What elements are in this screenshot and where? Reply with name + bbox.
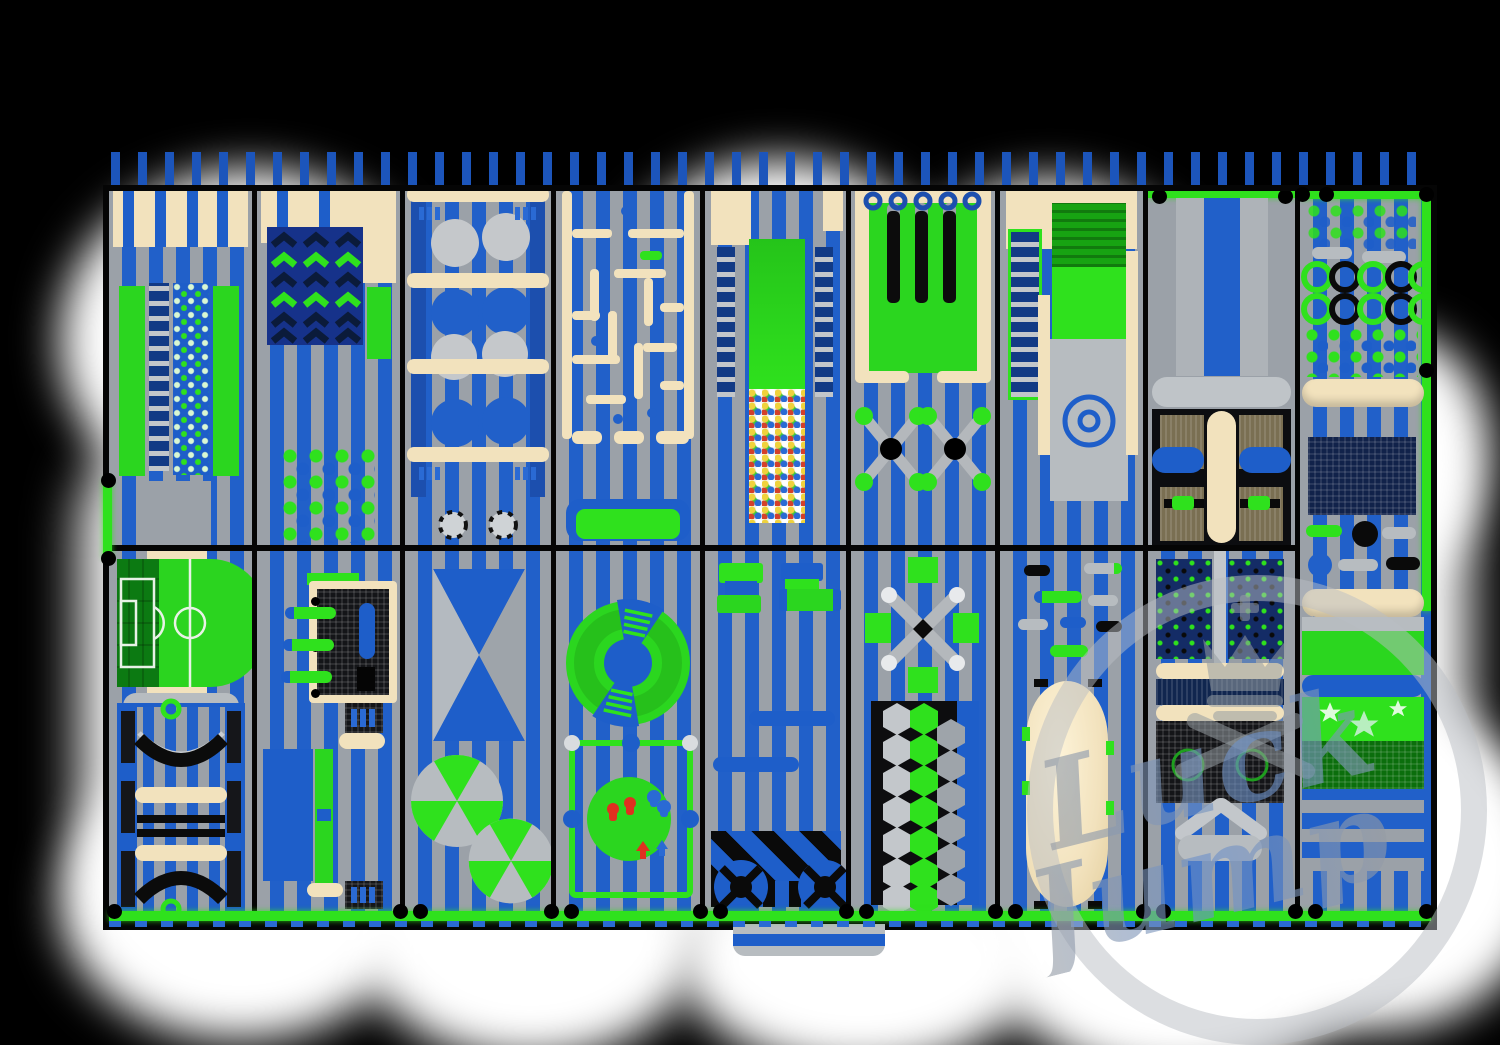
punch-bars — [887, 203, 956, 303]
playground-render: Lucky Jump — [0, 0, 1500, 1045]
entrance-step-stripe — [733, 934, 885, 946]
stepper — [1096, 621, 1122, 632]
roller-section — [1052, 203, 1126, 267]
bolt — [1288, 904, 1303, 919]
top-platform — [823, 191, 843, 231]
green-trim — [1148, 191, 1295, 198]
beige-divider — [135, 845, 227, 861]
beam-cap — [307, 883, 343, 897]
green-peg — [281, 671, 332, 683]
zone-rings-obstacle-lane — [1300, 191, 1431, 918]
seat — [785, 579, 819, 589]
green-peg — [285, 607, 336, 619]
blue-mat — [263, 749, 313, 881]
green-trim-bottom — [109, 911, 1431, 921]
roller-log — [1302, 589, 1424, 617]
landing-lane — [145, 481, 211, 545]
bag-strap — [1106, 741, 1114, 755]
corner-bolt — [1152, 191, 1167, 204]
trampoline-lanes — [109, 691, 252, 918]
stepper — [1034, 591, 1082, 603]
pinwheel-mat — [406, 755, 551, 903]
blue-beam — [749, 711, 835, 726]
zone-foam-maze — [556, 191, 700, 545]
zone-chevron-wall — [257, 191, 400, 545]
stepper — [1018, 619, 1048, 630]
landing-pad — [576, 509, 680, 539]
hold-dot-panel — [173, 283, 209, 475]
giant-balls — [431, 213, 530, 447]
zone-climb-panels-trampoline — [1148, 551, 1295, 918]
screen-bolt — [311, 597, 320, 606]
bag-strap — [1106, 801, 1114, 815]
maze — [556, 191, 700, 545]
gray-platform — [1178, 835, 1262, 861]
screen-black-bar — [357, 667, 375, 691]
roller-bolster — [1156, 663, 1284, 679]
entrance-step — [733, 924, 885, 956]
beam-cap — [339, 733, 385, 749]
bag-strap — [1022, 727, 1030, 741]
stepping-dot-grid — [283, 449, 375, 543]
green-climb-panel — [213, 286, 239, 476]
striped-runout — [1302, 789, 1424, 871]
zone-spin-wheel — [556, 551, 700, 918]
green-step — [640, 251, 662, 260]
green-peg — [283, 639, 334, 651]
bag-strap — [1022, 781, 1030, 795]
zone-ball-pit-slide — [705, 191, 846, 545]
zone-roller-slide — [1000, 191, 1143, 545]
spinner-discs — [440, 512, 516, 538]
bolt — [393, 904, 408, 919]
blue-beam — [713, 757, 799, 772]
dot-climb-panel — [1228, 559, 1284, 659]
zone-climbing-wall — [109, 191, 252, 545]
platform-step — [361, 243, 396, 283]
slide-body — [1052, 267, 1126, 339]
pod-dots — [1308, 205, 1416, 249]
target-circles — [1050, 339, 1128, 501]
beige-divider — [135, 787, 227, 803]
bolt — [544, 904, 559, 919]
green-climb-panel — [119, 286, 145, 476]
wall-post — [217, 191, 228, 247]
black-stepper — [1386, 557, 1420, 570]
side-rail — [1038, 295, 1050, 455]
giant-balls-frame — [405, 191, 551, 545]
fenced-platform — [563, 734, 699, 895]
zone-giant-balls — [405, 191, 551, 545]
seat-front — [717, 595, 761, 613]
bolt — [1295, 187, 1310, 202]
bolt — [988, 904, 1003, 919]
green-trim-left — [103, 480, 112, 558]
stepper — [1060, 617, 1086, 628]
roller-bolster — [1156, 705, 1284, 721]
green-pad — [1248, 496, 1270, 510]
pod-dots-dense — [1306, 329, 1418, 377]
hex-bridge — [871, 701, 979, 915]
slide-lane — [749, 239, 805, 389]
bolt — [859, 904, 874, 919]
roller-log — [1302, 379, 1424, 407]
bolt — [101, 551, 116, 566]
seat — [725, 581, 757, 595]
stepper — [1084, 563, 1122, 574]
green-stepper — [1306, 525, 1342, 537]
playground-floorplan — [103, 185, 1437, 930]
rings-rows — [1300, 261, 1431, 327]
seat-back — [719, 563, 763, 583]
wall-post — [187, 191, 198, 247]
chevron-climb-panel — [267, 227, 363, 345]
punch-bag-frame — [851, 191, 995, 545]
gray-bolster — [1152, 377, 1291, 407]
bag-strap — [1034, 679, 1048, 687]
side-rail — [1126, 251, 1138, 455]
star-decals — [1302, 697, 1424, 741]
screen-blue-bar — [359, 603, 375, 659]
bolt — [713, 904, 728, 919]
football-court — [109, 557, 252, 691]
bolt — [1308, 904, 1323, 919]
spinner-hex — [851, 551, 995, 918]
stepper — [1050, 645, 1088, 657]
dot-climb-panel — [1156, 559, 1212, 659]
maze-walls — [562, 191, 694, 444]
seat-front — [779, 589, 841, 611]
bag-strap — [1034, 901, 1048, 909]
wedge-pinwheels — [405, 551, 551, 918]
top-platform — [711, 191, 751, 245]
bolt — [1419, 904, 1434, 919]
blue-pod — [1308, 553, 1332, 577]
bolt — [1008, 904, 1023, 919]
blue-roller — [1302, 675, 1424, 697]
zone-stepper-foam-bag — [1000, 551, 1143, 918]
blue-bolster — [1239, 447, 1291, 473]
zone-soft-seating — [705, 551, 846, 918]
bag-strap — [1088, 901, 1102, 909]
bolt — [1136, 904, 1151, 919]
bolt — [693, 904, 708, 919]
spin-wheel — [556, 551, 700, 918]
cross-spinner — [855, 407, 991, 491]
center-bolster — [1207, 411, 1236, 543]
gray-band — [1302, 617, 1424, 631]
beam-node — [317, 809, 331, 821]
side-ladder — [717, 247, 735, 397]
blue-bolster — [1152, 447, 1204, 473]
zone-sports-court — [109, 551, 252, 918]
green-mat — [1302, 631, 1424, 675]
zone-punch-bag-lane — [851, 191, 995, 545]
bolt — [1319, 187, 1334, 202]
green-trim-right — [1422, 191, 1431, 611]
zone-wedge-bags — [405, 551, 551, 918]
wall-post — [123, 191, 134, 247]
grill — [351, 887, 357, 903]
climb-ladder — [149, 283, 169, 471]
net-panel — [1308, 437, 1416, 515]
grill — [351, 709, 357, 727]
bolt — [1419, 187, 1434, 202]
corner-bolt — [1278, 191, 1293, 204]
gray-stepper — [1338, 559, 1378, 571]
blue-dash-trim — [109, 921, 1431, 927]
giant-foam-bag — [1026, 681, 1108, 907]
bolt — [839, 904, 854, 919]
cross-spinner — [881, 587, 965, 671]
green-pad — [1172, 496, 1194, 510]
bolt — [107, 904, 122, 919]
navy-mesh-band — [1156, 679, 1284, 705]
side-ladder — [815, 247, 833, 397]
blue-walkway — [1204, 198, 1240, 376]
green-pad — [367, 287, 391, 359]
bag-strap — [1088, 679, 1102, 687]
wall-post-comb — [111, 152, 1431, 185]
screen-bolt — [311, 689, 320, 698]
green-net-section — [1302, 741, 1424, 789]
bolt — [1156, 904, 1171, 919]
stepper — [1024, 565, 1050, 576]
bolt — [564, 904, 579, 919]
bolt — [413, 904, 428, 919]
climb-ladder — [1008, 229, 1042, 400]
gray-step — [1312, 247, 1352, 259]
ball-pit — [749, 389, 805, 523]
bolt — [1419, 363, 1434, 378]
wall-post — [155, 191, 166, 247]
black-pod — [1352, 521, 1378, 547]
zone-interactive-wall — [257, 551, 400, 918]
zone-spinner-hex-bridge — [851, 551, 995, 918]
zone-cross-trampoline — [1148, 191, 1295, 545]
bolt — [101, 473, 116, 488]
gray-stepper — [1382, 527, 1416, 539]
stepper — [1088, 595, 1118, 606]
